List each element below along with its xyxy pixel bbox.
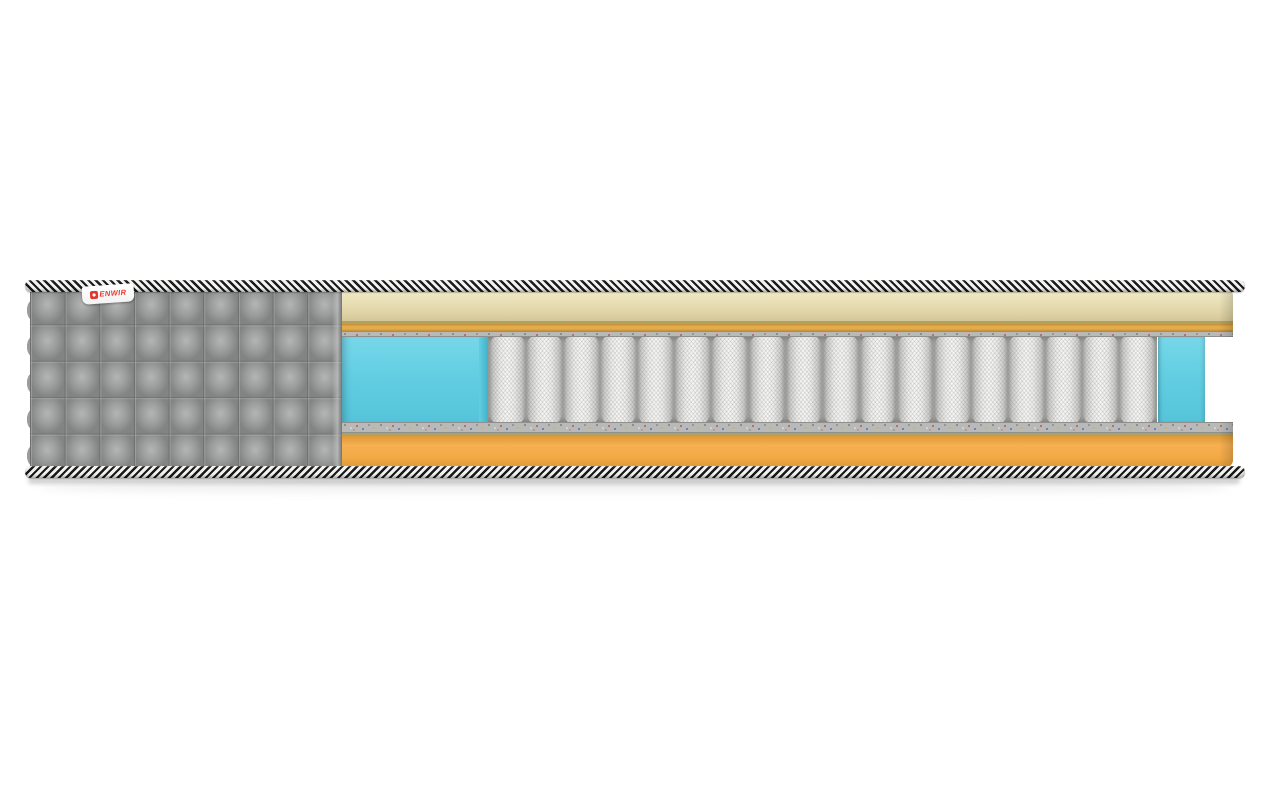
layer-cream-comfort [342,291,1233,321]
spring-coil [527,337,562,422]
brand-name: ENWIR [99,289,126,298]
spring-band [342,337,1233,422]
edge-braid-bottom [25,466,1245,478]
blue-foam-right [1158,337,1205,422]
quilt-cut-edge [332,288,342,470]
spring-coil [490,337,525,422]
spring-coil [935,337,970,422]
spring-coil [1083,337,1118,422]
spring-coil [861,337,896,422]
spring-coil [712,337,747,422]
quilted-cover [30,288,342,470]
pocket-spring-core [488,337,1157,422]
spring-coil [564,337,599,422]
spring-coil [898,337,933,422]
brand-tag: ENWIR [81,283,134,305]
blue-foam-bevel [479,337,488,422]
spring-coil [1120,337,1155,422]
spring-coil [675,337,710,422]
spring-coil [1009,337,1044,422]
floor-shadow-soft [40,480,1230,498]
blue-foam-left [342,337,488,422]
spring-coil [601,337,636,422]
spring-coil [1046,337,1081,422]
edge-braid-top [25,280,1245,292]
layer-felt-pad-bottom [342,422,1233,433]
brand-logo-icon [89,291,98,300]
spring-coil [824,337,859,422]
cross-section [342,291,1233,467]
mattress-cutaway-image: ENWIR [30,280,1240,478]
spring-coil [638,337,673,422]
layer-base-foam [342,436,1233,467]
layer-gold-foam-strip [342,324,1233,331]
spring-coil [787,337,822,422]
spring-coil [972,337,1007,422]
spring-coil [750,337,785,422]
product-scene: ENWIR [0,0,1280,800]
